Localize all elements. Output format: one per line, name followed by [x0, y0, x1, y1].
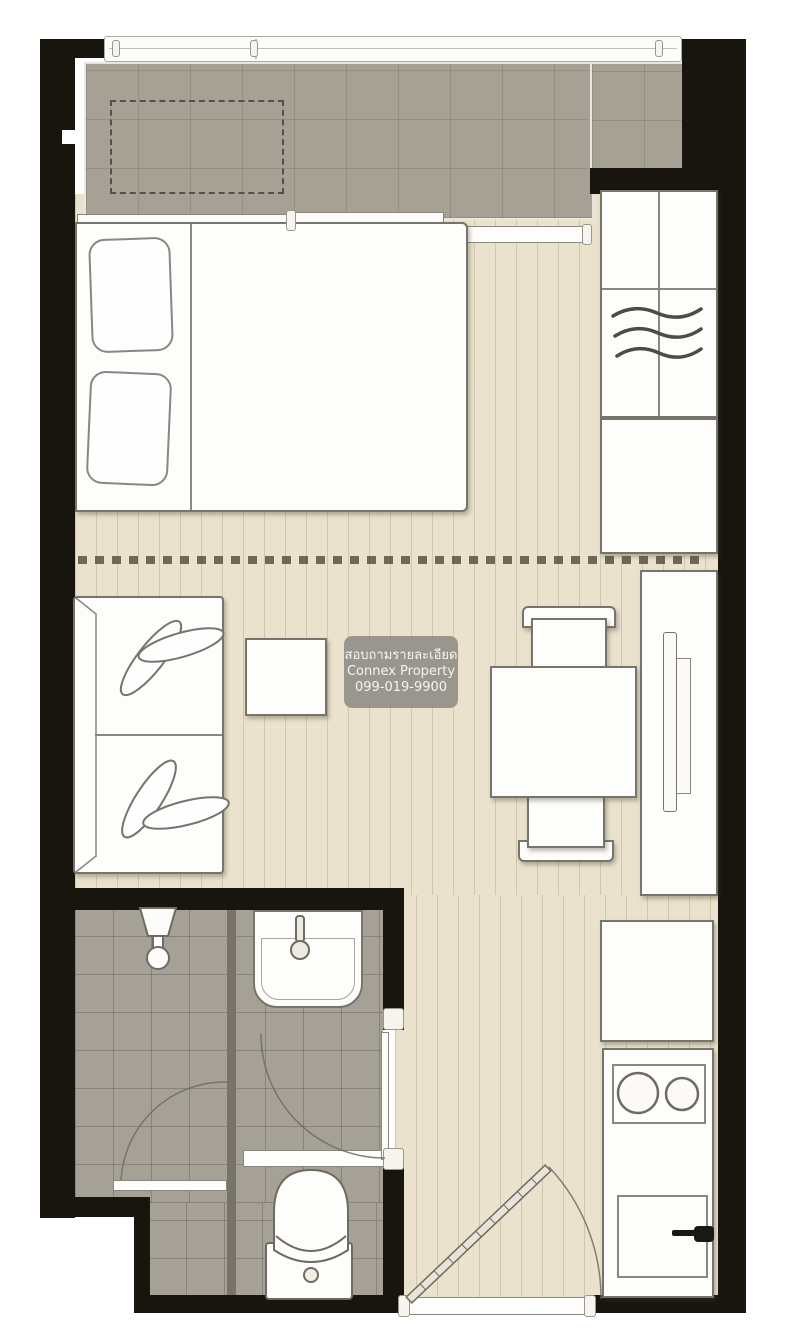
watermark-badge: สอบถามรายละเอียด Connex Property 099-019… [344, 636, 458, 708]
stove-panel [612, 1064, 706, 1124]
door-jamb-cap [398, 1295, 410, 1317]
watermark-line-thai: สอบถามรายละเอียด [345, 648, 458, 664]
floor-plan: สอบถามรายละเอียด Connex Property 099-019… [0, 0, 800, 1343]
wall-joint-mark [62, 130, 76, 144]
entrance-threshold [404, 1297, 588, 1315]
railing-post [112, 40, 120, 57]
bathroom-door-leaf [381, 1032, 389, 1160]
balcony-floor-right [590, 62, 686, 172]
wardrobe [600, 190, 718, 418]
ac-condenser-pad-dashed [110, 100, 284, 194]
door-jamb-cap [383, 1008, 404, 1030]
dining-chair-seat-bottom [527, 796, 605, 848]
sofa [73, 596, 224, 874]
television [663, 632, 677, 812]
railing-post [250, 40, 258, 57]
dining-table [490, 666, 637, 798]
partition-dashed-line [78, 556, 702, 564]
wall-right [718, 190, 746, 1313]
toilet-shelf [243, 1150, 385, 1167]
refrigerator [600, 920, 714, 1042]
sliding-door-jamb [286, 210, 296, 231]
bathroom-sink [253, 910, 363, 1008]
wall-bottom-bathroom [134, 1295, 404, 1313]
shower-door-leaf [113, 1180, 227, 1191]
door-jamb-cap [584, 1295, 596, 1317]
pillow [88, 237, 174, 354]
bathroom-floor-lower [148, 1203, 383, 1297]
watermark-line-brand: Connex Property [347, 664, 455, 680]
television-back [675, 658, 691, 794]
watermark-line-phone: 099-019-9900 [355, 680, 447, 696]
side-table [245, 638, 327, 716]
sliding-door-jamb [582, 224, 592, 245]
wall-left [40, 39, 75, 1218]
wall-bathroom-right-lower [383, 1163, 404, 1297]
railing-post [655, 40, 663, 57]
door-jamb-cap [383, 1148, 404, 1170]
balcony-railing [104, 36, 682, 62]
pillow [86, 370, 173, 486]
storage-cabinet [600, 418, 718, 554]
wall-top-left-stub [40, 39, 104, 58]
dining-chair-seat-top [531, 618, 607, 672]
kitchen-sink-basin [617, 1195, 708, 1278]
wall-bathroom-top [75, 888, 404, 910]
kitchen-counter [602, 1048, 714, 1298]
shower-partition [227, 910, 236, 1297]
